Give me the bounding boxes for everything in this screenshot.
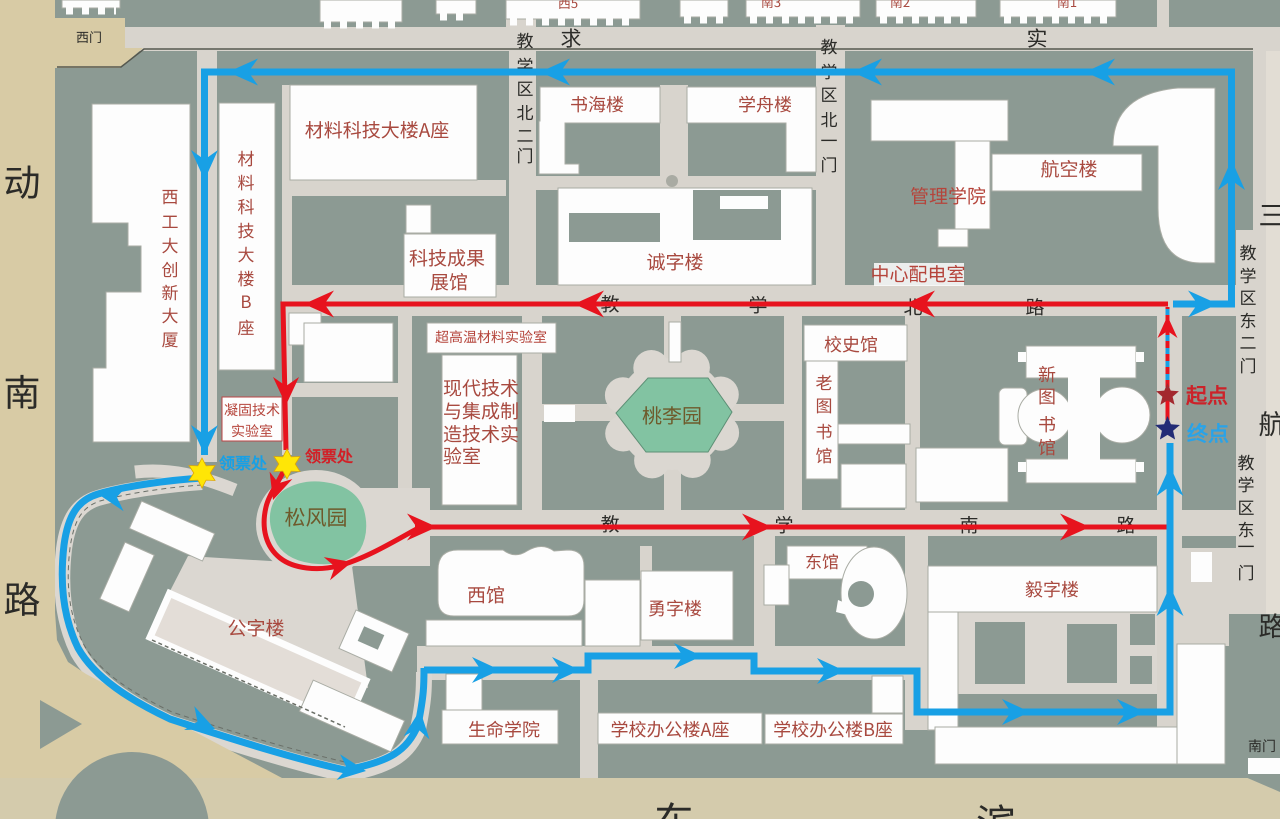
svg-text:南3: 南3 <box>761 0 781 11</box>
svg-text:二: 二 <box>1240 329 1257 354</box>
svg-text:路: 路 <box>1259 605 1280 644</box>
svg-text:南门: 南门 <box>1248 736 1276 756</box>
svg-text:验室: 验室 <box>443 442 481 469</box>
svg-text:技: 技 <box>238 217 255 242</box>
svg-text:教: 教 <box>821 33 838 58</box>
svg-text:B: B <box>240 288 251 313</box>
svg-text:航空楼: 航空楼 <box>1040 155 1097 182</box>
svg-text:东: 东 <box>654 790 694 819</box>
svg-text:超高温材料实验室: 超高温材料实验室 <box>435 327 547 347</box>
svg-text:门: 门 <box>821 151 838 176</box>
svg-text:教: 教 <box>600 510 619 537</box>
svg-text:生命学院: 生命学院 <box>468 716 540 742</box>
svg-text:路: 路 <box>4 570 41 624</box>
svg-text:西5: 西5 <box>558 0 578 12</box>
svg-text:新: 新 <box>162 279 179 304</box>
svg-text:图: 图 <box>1038 383 1056 409</box>
svg-text:三: 三 <box>1259 194 1280 233</box>
svg-text:东馆: 东馆 <box>805 548 839 573</box>
svg-text:领票处: 领票处 <box>219 450 268 474</box>
svg-text:南1: 南1 <box>1057 0 1077 11</box>
svg-text:图: 图 <box>816 392 833 417</box>
svg-text:学舟楼: 学舟楼 <box>738 91 792 117</box>
svg-text:区: 区 <box>517 75 534 100</box>
svg-text:区: 区 <box>1240 284 1257 309</box>
svg-text:料: 料 <box>238 169 255 194</box>
svg-text:门: 门 <box>517 142 534 167</box>
svg-text:南2: 南2 <box>890 0 910 11</box>
svg-text:一: 一 <box>821 127 838 152</box>
svg-text:南: 南 <box>4 363 41 417</box>
svg-text:教: 教 <box>1240 239 1257 264</box>
svg-text:西馆: 西馆 <box>467 581 505 608</box>
svg-text:终点: 终点 <box>1187 418 1229 448</box>
svg-text:航: 航 <box>1259 403 1280 442</box>
svg-text:大: 大 <box>162 232 179 257</box>
svg-text:材料科技大楼A座: 材料科技大楼A座 <box>305 116 450 143</box>
svg-text:馆: 馆 <box>816 442 833 467</box>
svg-text:工: 工 <box>162 208 179 233</box>
svg-text:实: 实 <box>1027 23 1048 53</box>
svg-text:学校办公楼A座: 学校办公楼A座 <box>611 716 730 742</box>
svg-text:起点: 起点 <box>1185 380 1228 410</box>
svg-text:大: 大 <box>238 241 255 266</box>
svg-text:展馆: 展馆 <box>430 268 468 295</box>
svg-text:学: 学 <box>1238 471 1255 496</box>
svg-text:动: 动 <box>4 153 41 207</box>
svg-text:教: 教 <box>517 27 534 52</box>
svg-text:书: 书 <box>816 418 833 443</box>
svg-text:科技成果: 科技成果 <box>409 244 485 271</box>
svg-text:座: 座 <box>238 314 255 339</box>
svg-text:桃李园: 桃李园 <box>642 400 702 429</box>
svg-text:创: 创 <box>162 256 179 281</box>
svg-text:材: 材 <box>238 145 255 170</box>
svg-text:大: 大 <box>162 302 179 327</box>
svg-text:实验室: 实验室 <box>231 421 273 441</box>
svg-text:勇字楼: 勇字楼 <box>648 595 702 621</box>
svg-text:西: 西 <box>162 183 179 208</box>
svg-text:门: 门 <box>1240 352 1257 377</box>
svg-text:领票处: 领票处 <box>305 443 354 467</box>
svg-text:科: 科 <box>238 193 255 218</box>
svg-text:一: 一 <box>1238 533 1255 558</box>
svg-text:公字楼: 公字楼 <box>227 614 284 641</box>
svg-text:毅字楼: 毅字楼 <box>1025 576 1079 602</box>
svg-text:书海楼: 书海楼 <box>570 91 624 117</box>
svg-text:校史馆: 校史馆 <box>824 331 878 357</box>
svg-text:老: 老 <box>816 369 833 394</box>
svg-text:中心配电室: 中心配电室 <box>870 260 965 287</box>
svg-text:楼: 楼 <box>238 265 255 290</box>
svg-text:松风园: 松风园 <box>285 502 348 532</box>
svg-text:求: 求 <box>561 23 582 53</box>
svg-text:厦: 厦 <box>162 326 179 351</box>
svg-text:北: 北 <box>517 99 534 124</box>
svg-text:滨: 滨 <box>976 792 1016 819</box>
svg-text:馆: 馆 <box>1038 434 1056 460</box>
svg-text:门: 门 <box>1238 559 1255 584</box>
svg-text:区: 区 <box>821 81 838 106</box>
svg-text:诚字楼: 诚字楼 <box>646 248 703 275</box>
svg-text:学校办公楼B座: 学校办公楼B座 <box>773 716 893 742</box>
svg-text:西门: 西门 <box>76 27 102 46</box>
svg-text:凝固技术: 凝固技术 <box>224 400 280 420</box>
svg-text:管理学院: 管理学院 <box>910 182 986 209</box>
